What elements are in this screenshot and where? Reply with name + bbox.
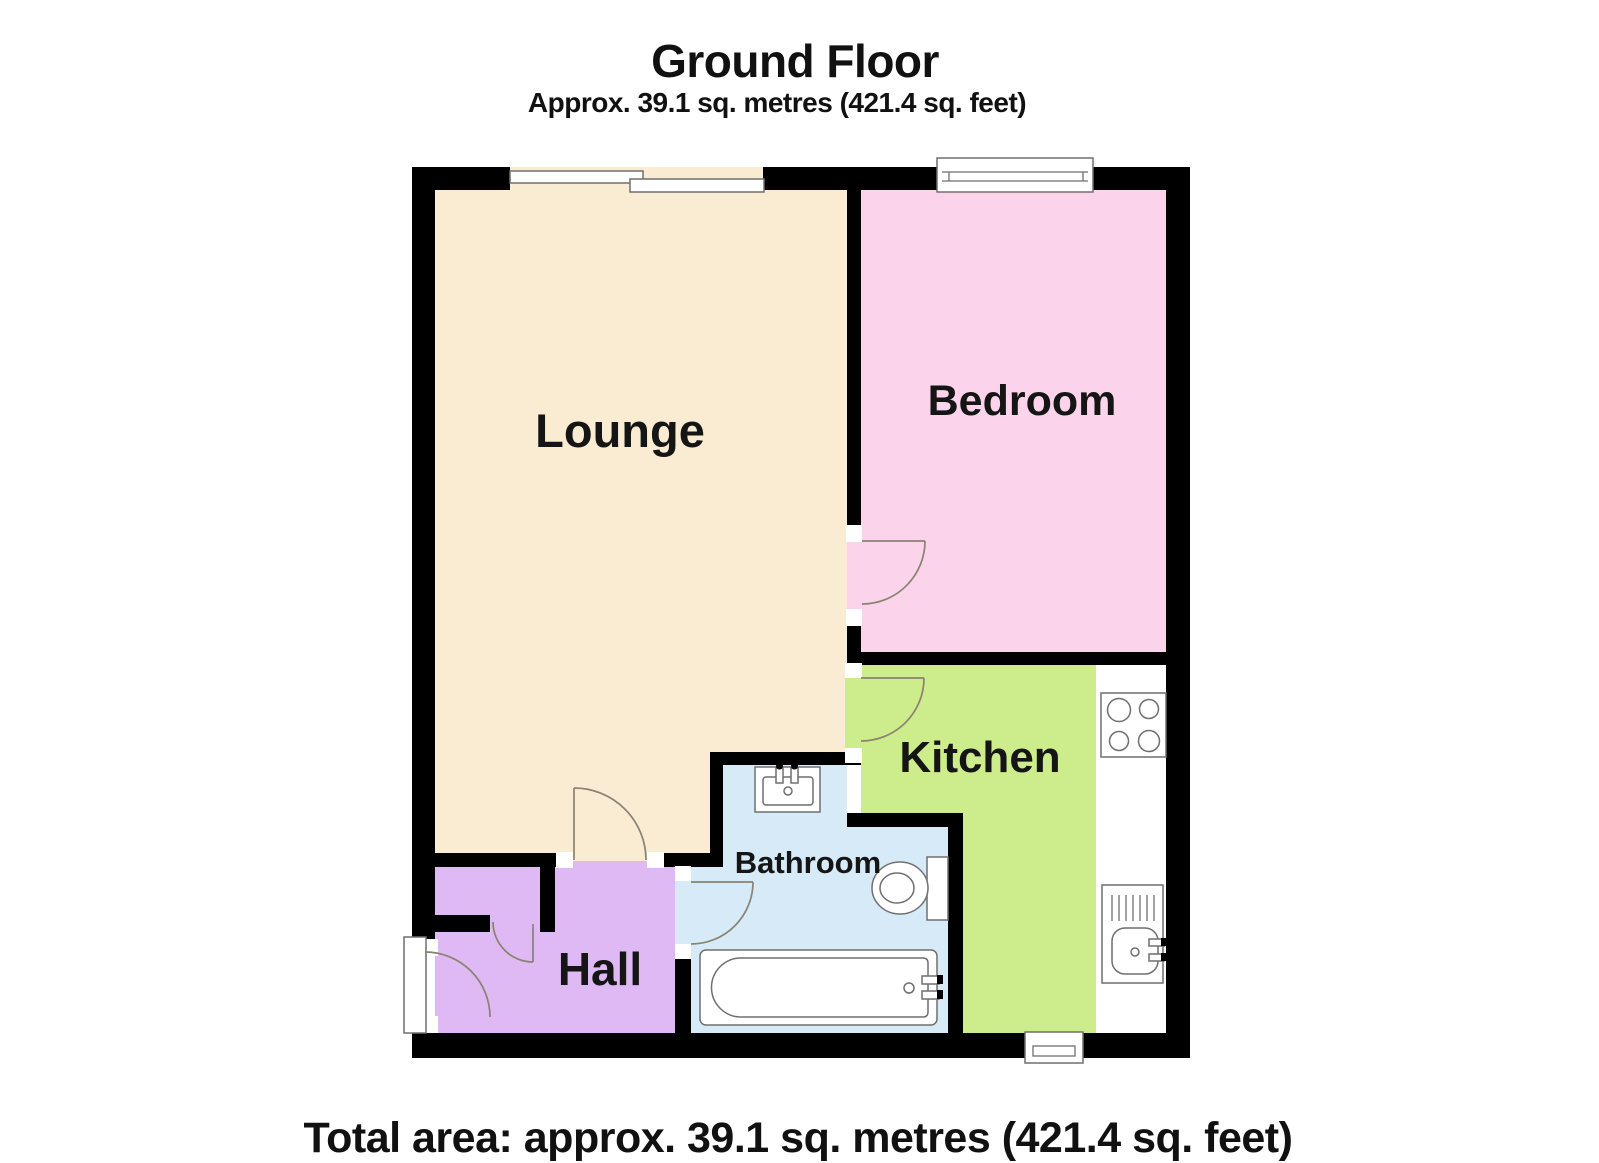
kitchen-door-jamb-bottom [845,748,862,763]
basin-drain [784,787,792,795]
page-subtitle: Approx. 39.1 sq. metres (421.4 sq. feet) [528,87,1026,118]
wall-lounge-bottom-right [663,853,723,867]
sink-tap-bottom-head [1161,953,1167,961]
lounge-door-jamb-left [556,852,573,868]
wall-bathroom-top [710,752,861,765]
bedroom-door-opening [847,542,861,609]
lounge-window-pane-upper [510,171,643,183]
sink-drain [1131,948,1139,956]
basin-tap-left-head [776,763,783,770]
outer-wall-top-middle [763,167,937,190]
wall-kitchen-step-horizontal [847,813,963,827]
hob-ring-bottom-right [1139,731,1160,752]
bath-tap-top-head [937,975,943,984]
outer-wall-bottom-left [412,1033,1025,1058]
wall-hall-bathroom [675,959,691,1033]
bathroom-label: Bathroom [735,845,881,880]
lounge-door-jamb-right [647,852,664,868]
wall-closet-bottom [435,915,490,932]
page-title: Ground Floor [651,35,939,87]
kitchen-label: Kitchen [899,733,1060,782]
lounge-door-opening-bottom [573,861,647,867]
basin-tap-right-head [791,763,798,770]
kitchen-window [1025,1032,1083,1063]
sink-tap-top-head [1161,938,1167,946]
wall-lounge-bedroom-upper [847,190,861,525]
floor-plan: Ground Floor Approx. 39.1 sq. metres (42… [0,0,1599,1163]
bathroom-door-jamb-bottom [675,944,691,959]
wall-bedroom-bottom [847,652,1166,665]
bath-tap-bottom [922,991,939,999]
bath-tap-bottom-head [937,990,943,999]
bath-inner [712,958,929,1017]
kitchen-sink [1102,885,1167,983]
lounge-door-opening-top [573,853,647,861]
wall-bathroom-notch-left [710,752,723,866]
floorplan-page: Ground Floor Approx. 39.1 sq. metres (42… [0,0,1599,1163]
front-door [404,937,426,1033]
toilet-bowl-inner [880,873,914,903]
kitchen-door-jamb-top [845,663,862,678]
hob-ring-top-right [1140,700,1159,719]
kitchen-door-opening [845,678,861,748]
bathroom-basin [755,763,820,813]
hob [1101,693,1166,757]
wall-closet-right [540,866,555,932]
bedroom-door-jamb-top [846,525,862,542]
bath-tap-top [922,976,939,984]
bedroom-window [937,158,1093,192]
hall-label: Hall [558,943,642,995]
lounge-window-pane-lower [630,179,764,192]
hob-ring-bottom-left [1110,732,1129,751]
toilet-cistern [927,857,948,920]
total-area-label: Total area: approx. 39.1 sq. metres (421… [304,1114,1293,1162]
outer-wall-left-upper [412,167,435,940]
bath-tub [700,950,943,1025]
bedroom-label: Bedroom [928,377,1117,425]
bedroom-door-jamb-bottom [846,609,862,626]
lounge-label: Lounge [535,404,705,457]
bathroom-door-opening [675,881,691,944]
basin-tap-right [791,768,798,783]
basin-tap-left [776,768,783,783]
outer-wall-right [1166,167,1190,1058]
wall-lounge-bottom-left [435,853,557,867]
bath-drain [904,983,914,993]
wall-kitchen-bathroom-lower [948,827,963,1033]
bathroom-door-jamb-top [675,866,691,881]
hob-ring-top-left [1108,699,1131,722]
